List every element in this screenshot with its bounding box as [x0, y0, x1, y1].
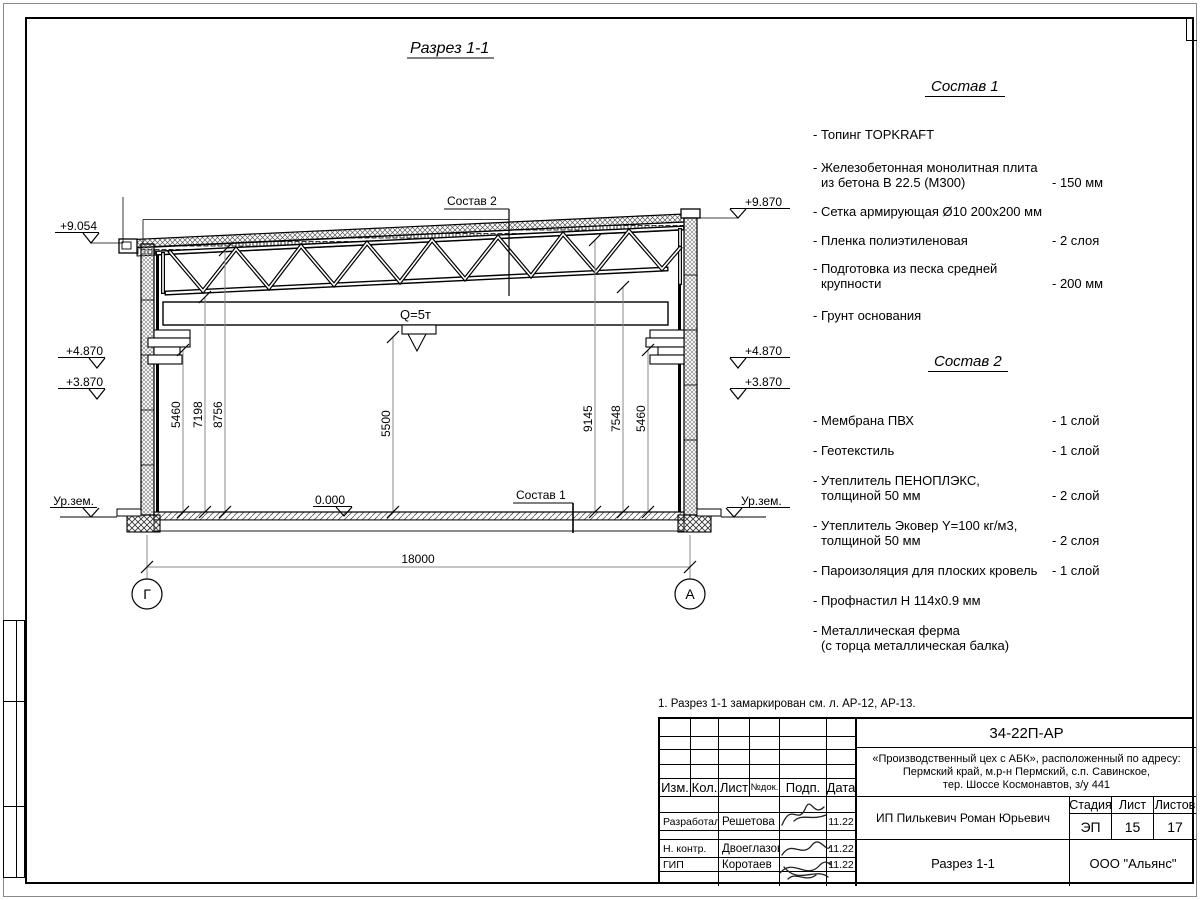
doc-number: 34-22П-АР: [857, 719, 1196, 748]
project-description: «Производственный цех с АБК», расположен…: [857, 748, 1196, 797]
dimension-labels: 5460 7198 8756 5500 9145 7548 5460: [169, 401, 648, 437]
date-developer: 11.22: [827, 813, 857, 831]
level-4870-right: +4.870: [745, 344, 782, 358]
name-developer: Решетова: [719, 813, 780, 831]
left-crane-bracket: [148, 330, 190, 364]
list-item: - Сетка армирующая Ø10 200x200 мм: [813, 204, 1042, 219]
drawing-note: 1. Разрез 1-1 замаркирован см. л. АР-12,…: [658, 698, 916, 710]
crane-capacity-label: Q=5т: [400, 307, 431, 322]
list-item: - Пленка полиэтиленовая - 2 слоя: [813, 233, 968, 248]
ground-level-right: Ур.зем.: [741, 494, 782, 508]
crane-hook: [408, 334, 426, 351]
col-list: Лист: [719, 779, 750, 797]
level-0000: 0.000: [315, 493, 345, 507]
sheets-label: Листов: [1154, 797, 1196, 814]
callout-sostav1-label: Состав 1: [516, 488, 566, 502]
drawing-sheet: Разрез 1-1: [0, 0, 1200, 900]
callout-sostav2-label: Состав 2: [447, 194, 497, 208]
list-item: - Мембрана ПВХ - 1 слой: [813, 413, 914, 428]
col-kol: Кол.: [691, 779, 719, 797]
role-ncontrol: Н. контр.: [660, 840, 719, 858]
list-item: - Утеплитель ПЕНОПЛЭКС, толщиной 50 мм -…: [813, 473, 980, 503]
list-item: - Железобетонная монолитная плита из бет…: [813, 160, 1038, 190]
date-gip: 11.22: [827, 858, 857, 872]
span-dimension: 18000 Г А: [132, 535, 705, 609]
stage-value: ЭП: [1070, 814, 1112, 840]
level-9870: +9.870: [745, 195, 782, 209]
crane-beam: Q=5т: [163, 302, 668, 351]
dim-7548: 7548: [609, 405, 623, 432]
right-footing: [678, 515, 711, 532]
dim-5460-right: 5460: [634, 405, 648, 432]
col-data: Дата: [827, 779, 857, 797]
left-footing: [127, 515, 160, 532]
title-block: Изм. Кол. Лист №док. Подп. Дата Разработ…: [658, 717, 1194, 884]
list-item: - Утеплитель Эковер Y=100 кг/м3, толщино…: [813, 518, 1017, 548]
sheet-value: 15: [1112, 814, 1154, 840]
list-item: - Топинг TOPKRAFT: [813, 127, 934, 142]
sheets-value: 17: [1154, 814, 1196, 840]
sostav2-heading: Состав 2: [928, 353, 1008, 372]
client-name: ИП Пилькевич Роман Юрьевич: [857, 797, 1070, 840]
col-podp: Подп.: [780, 779, 827, 797]
dim-9145: 9145: [581, 405, 595, 432]
dimension-ticks: [177, 234, 654, 518]
dim-7198: 7198: [191, 401, 205, 428]
sheet-title: Разрез 1-1: [857, 840, 1070, 886]
span-dim-label: 18000: [401, 552, 435, 566]
level-3870-left: +3.870: [66, 375, 103, 389]
list-item: - Пароизоляция для плоских кровель - 1 с…: [813, 563, 1037, 578]
sostav1-heading: Состав 1: [925, 78, 1005, 97]
ground-level-left: Ур.зем.: [53, 494, 94, 508]
axis-letter-right: А: [685, 586, 695, 602]
role-gip: ГИП: [660, 858, 719, 872]
name-ncontrol: Двоеглазов: [719, 840, 780, 858]
stage-label: Стадия: [1070, 797, 1112, 814]
dim-5460-left: 5460: [169, 401, 183, 428]
level-marks-left: +9.054 +4.870 +3.870 Ур.зем.: [50, 197, 123, 517]
col-ndok: №док.: [750, 779, 780, 797]
list-item: - Металлическая ферма (с торца металличе…: [813, 623, 1009, 653]
list-item: - Геотекстиль - 1 слой: [813, 443, 894, 458]
dim-5500: 5500: [379, 410, 393, 437]
level-9054: +9.054: [60, 219, 97, 233]
parapet-cap: [681, 209, 700, 218]
date-ncontrol: 11.22: [827, 840, 857, 858]
list-item: - Профнастил Н 114x0.9 мм: [813, 593, 981, 608]
dim-8756: 8756: [211, 401, 225, 428]
drawing-title-text: Разрез 1-1: [410, 40, 489, 57]
drawing-title: Разрез 1-1: [407, 40, 494, 58]
level-marks-right: +9.870 +4.870 +3.870 Ур.зем.: [699, 195, 790, 517]
left-wall: [141, 244, 159, 515]
floor-slab: [60, 509, 766, 532]
crane-trolley: [402, 325, 436, 334]
list-item: - Подготовка из песка средней крупности …: [813, 261, 997, 291]
list-item: - Грунт основания: [813, 308, 921, 323]
axis-letter-left: Г: [143, 586, 151, 602]
organization: ООО "Альянс": [1070, 840, 1196, 886]
sheet-label: Лист: [1112, 797, 1154, 814]
role-developer: Разработал: [660, 813, 719, 831]
level-3870-right: +3.870: [745, 375, 782, 389]
left-column: [156, 252, 159, 512]
level-4870-left: +4.870: [66, 344, 103, 358]
col-izm: Изм.: [660, 779, 691, 797]
name-gip: Коротаев: [719, 858, 780, 872]
